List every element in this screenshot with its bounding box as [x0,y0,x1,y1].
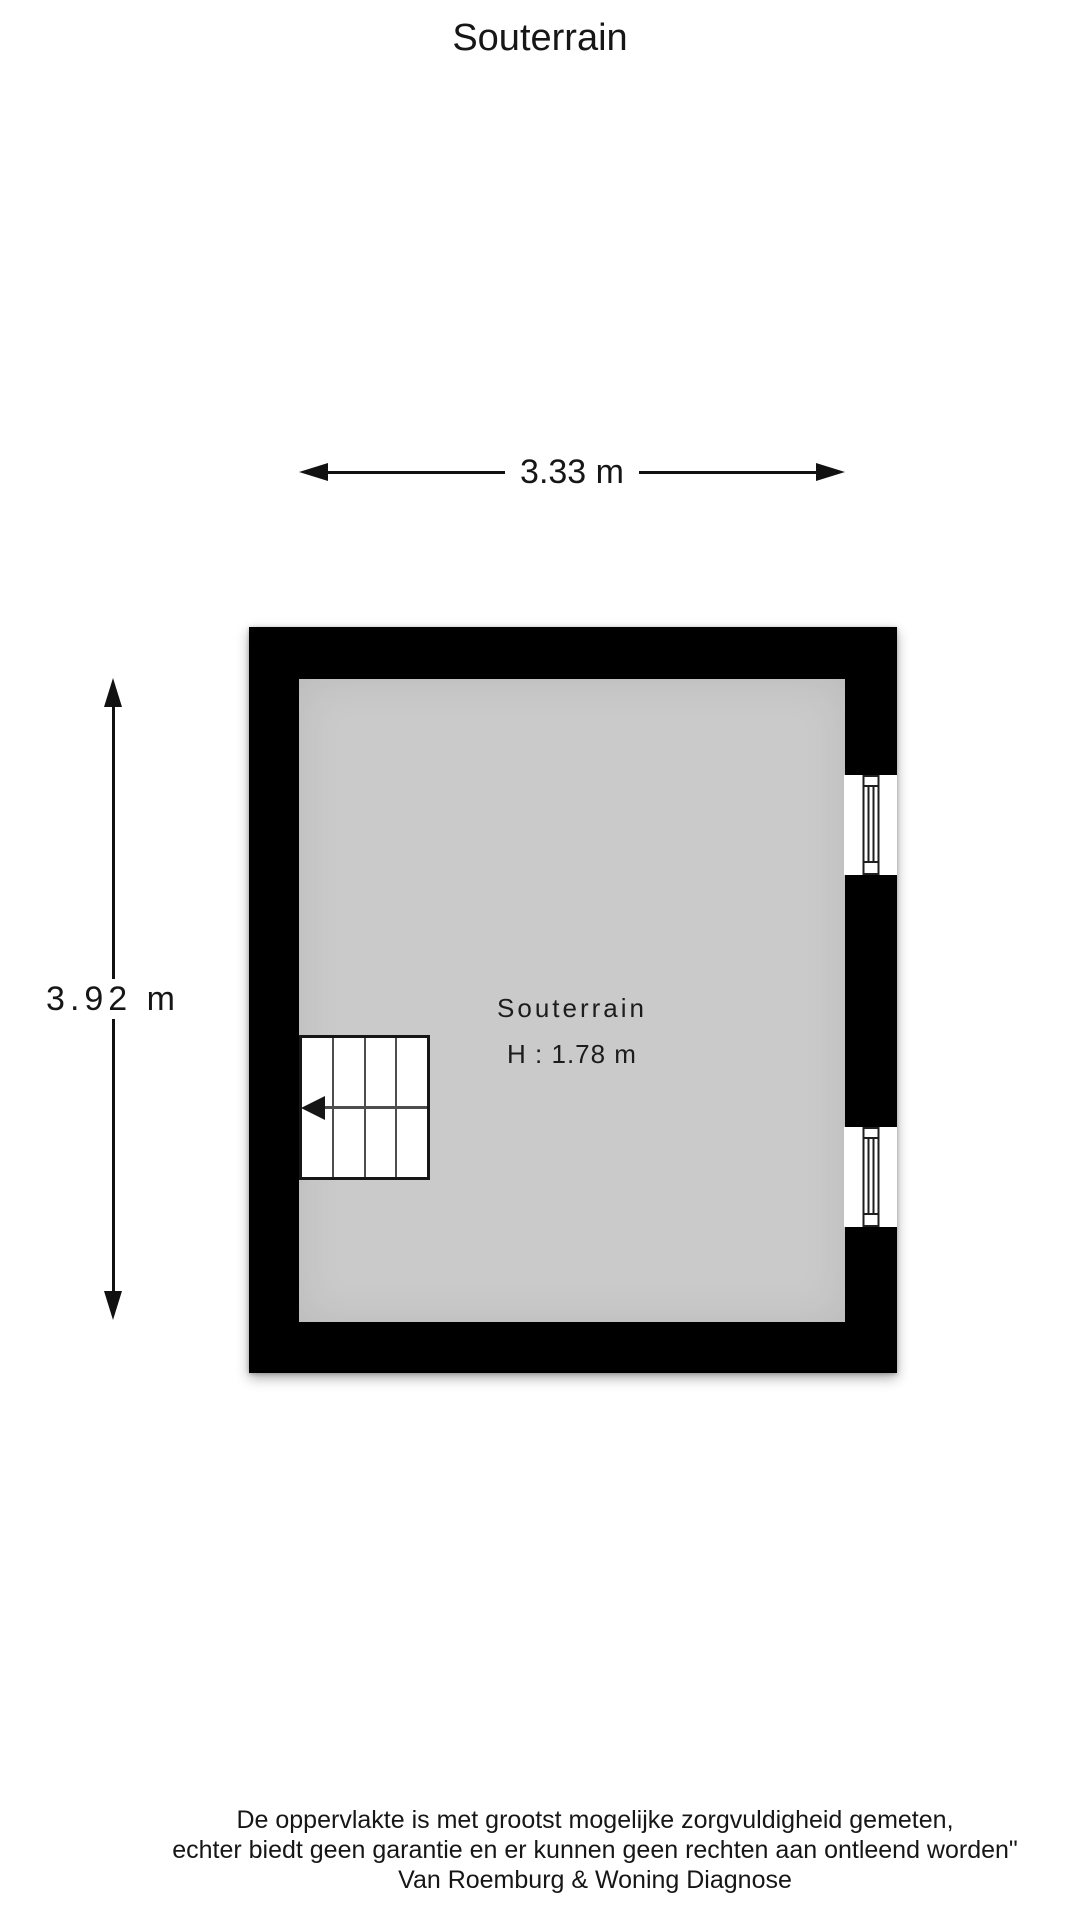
room-labels: Souterrain H : 1.78 m [299,992,845,1070]
company-name: Van Roemburg & Woning Diagnose [105,1865,1080,1895]
width-dimension-line-right [639,471,816,474]
disclaimer-line-1: De oppervlakte is met grootst mogelijke … [105,1805,1080,1835]
footer-disclaimer: De oppervlakte is met grootst mogelijke … [105,1805,1080,1895]
window-cap-top [864,1129,877,1139]
room-name-label: Souterrain [299,992,845,1024]
dim-arrowhead-right-icon [816,463,845,481]
height-dimension-label: 3.92 m [46,979,180,1019]
window-glass [864,1139,877,1213]
window-pane-line [872,787,874,861]
window-pane-line [867,787,869,861]
page-title: Souterrain [0,16,1080,60]
width-dimension-line-left [328,471,505,474]
room-ceiling-height-label: H : 1.78 m [299,1038,845,1070]
height-dimension: 3.92 m [96,678,130,1320]
width-dimension-label: 3.33 m [505,455,639,489]
window-cap-bottom [864,861,877,873]
height-dimension-line-bottom [112,1019,115,1291]
width-dimension: 3.33 m [299,454,845,490]
disclaimer-line-2: echter biedt geen garantie en er kunnen … [105,1835,1080,1865]
window-upper [844,775,897,875]
stair-direction-arrow-icon [301,1096,325,1120]
window-lower [844,1127,897,1227]
dim-arrowhead-up-icon [104,678,122,707]
dim-arrowhead-left-icon [299,463,328,481]
window-pane-line [872,1139,874,1213]
window-upper-frame [862,775,879,875]
window-pane-line [867,1139,869,1213]
window-glass [864,787,877,861]
window-cap-top [864,777,877,787]
stair-direction-line [322,1106,427,1109]
floorplan-page: Souterrain 3.33 m 3.92 m [0,0,1080,1920]
dim-arrowhead-down-icon [104,1291,122,1320]
height-dimension-line-top [112,707,115,979]
window-cap-bottom [864,1213,877,1225]
window-lower-frame [862,1127,879,1227]
